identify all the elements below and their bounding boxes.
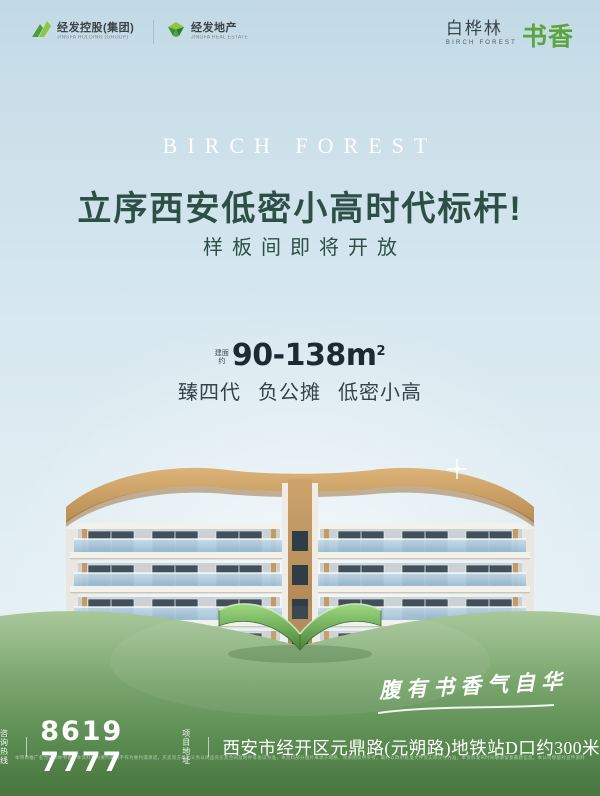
brand-zh-accent: 书香 <box>522 17 574 53</box>
jingfa-holding-icon <box>30 20 52 44</box>
tag-3: 低密小高 <box>338 376 422 405</box>
logo-jingfa-holding: 经发控股(集团) JINGFA HOLDING (GROUP) <box>30 20 141 44</box>
project-brand-logo: 白桦林 BIRCH FOREST 书香 <box>446 20 574 53</box>
contact-bar: 咨询 热线 8619 7777 项目 地址 西安市经开区元鼎路(元朔路)地铁站D… <box>0 716 600 778</box>
poster: 经发控股(集团) JINGFA HOLDING (GROUP) 经发地产 JI <box>0 0 600 796</box>
area-info: 建面 约 90-138m2 <box>0 338 600 373</box>
english-title: BIRCH FOREST <box>0 133 600 159</box>
logo-divider <box>153 20 154 44</box>
logo-holding-name: 经发控股(集团) <box>57 23 141 35</box>
brand-en: BIRCH FOREST <box>446 40 517 46</box>
logo-jingfa-estate: 经发地产 JINGFA REAL ESTATE <box>166 21 258 43</box>
tag-2: 负公摊 <box>258 376 321 405</box>
main-headline: 立序西安低密小高时代标杆! <box>0 181 600 230</box>
sub-headline: 样板间即将开放 <box>0 231 600 260</box>
logo-estate-name: 经发地产 <box>191 23 258 35</box>
tag-1: 臻四代 <box>178 376 241 405</box>
hotline-label: 咨询 热线 <box>0 729 12 766</box>
legal-disclaimer: 本项目推广名为白桦林书香，本资料仅为要约邀请不作为要约或承诺，买卖双方权利义务以… <box>15 754 585 761</box>
brand-zh-main: 白桦林 <box>446 20 517 37</box>
logo-holding-subtitle: JINGFA HOLDING (GROUP) <box>57 35 128 40</box>
developer-logos: 经发控股(集团) JINGFA HOLDING (GROUP) 经发地产 JI <box>30 20 258 44</box>
area-prefix: 建面 约 <box>215 350 229 365</box>
hotline-number: 8619 7777 <box>40 716 154 778</box>
area-value: 90-138m2 <box>232 338 385 373</box>
selling-points: 臻四代 负公摊 低密小高 <box>0 376 600 405</box>
jingfa-estate-icon <box>166 21 186 43</box>
open-book-icon <box>215 594 385 668</box>
slogan-underline <box>376 702 556 716</box>
logo-estate-subtitle: JINGFA REAL ESTATE <box>191 35 248 40</box>
header: 经发控股(集团) JINGFA HOLDING (GROUP) 经发地产 JI <box>30 20 574 53</box>
area-sup: 2 <box>377 344 386 359</box>
